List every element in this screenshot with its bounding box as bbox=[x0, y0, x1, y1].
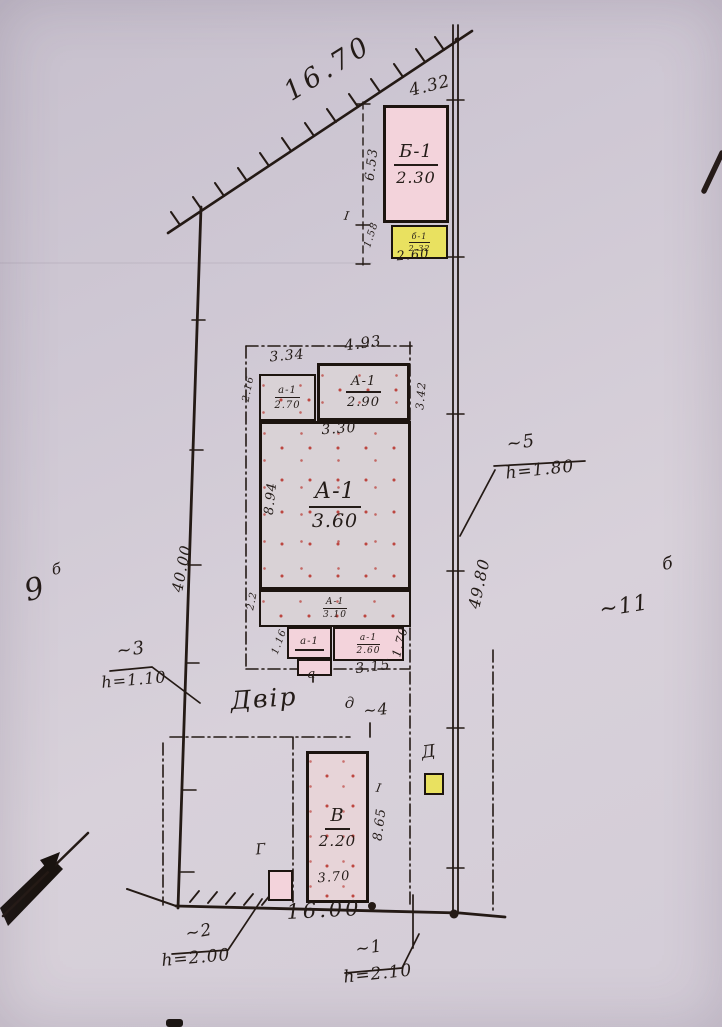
porch-left: а-1 bbox=[287, 627, 332, 659]
a1-rear-name: А-1 bbox=[323, 597, 348, 609]
a1-rear-height: 3.10 bbox=[323, 609, 347, 620]
porch-right-name: а-1 bbox=[357, 633, 380, 645]
porch-right-height: 2.60 bbox=[356, 645, 380, 656]
east-boundary-line bbox=[447, 25, 464, 913]
roman-tick-v: І bbox=[371, 781, 387, 795]
wing-right-name: А-1 bbox=[346, 374, 382, 393]
a1-rear-label: А-1 3.10 bbox=[261, 592, 409, 625]
porch-left-label: а-1 bbox=[289, 629, 330, 657]
neighbor-right-sup: б bbox=[657, 555, 679, 575]
building-a1-wing-left: а-1 2.70 bbox=[259, 374, 316, 421]
building-g-box bbox=[268, 870, 293, 901]
wing-left-height: 2.70 bbox=[274, 398, 300, 411]
building-v-name: В bbox=[325, 805, 349, 830]
building-d-box bbox=[424, 773, 444, 795]
building-b1-annex-name: б-1 bbox=[409, 232, 431, 243]
building-b1-name: Б-1 bbox=[394, 141, 438, 166]
roman-tick-top: І bbox=[339, 209, 355, 223]
dim-bottom-boundary: 16.00 bbox=[276, 898, 373, 924]
building-g-label: Г bbox=[249, 841, 272, 858]
wing-left-name: а-1 bbox=[275, 385, 300, 398]
building-v-height: 2.20 bbox=[319, 830, 356, 850]
a1-main-name: А-1 bbox=[309, 479, 360, 508]
site-plan-scan: Б-1 2.30 б-1 2.32 а-1 2.70 А-1 2.90 А-1 … bbox=[0, 0, 722, 1027]
building-a1-wing-right: А-1 2.90 bbox=[317, 363, 410, 421]
dim-wing-left-width: 3.34 bbox=[261, 347, 312, 365]
building-b1-label: Б-1 2.30 bbox=[386, 108, 446, 220]
building-b1-height: 2.30 bbox=[396, 166, 436, 187]
building-d-label: Д bbox=[415, 742, 443, 762]
building-a1-main: А-1 3.60 bbox=[259, 421, 411, 590]
porch-letter: а bbox=[302, 668, 322, 681]
neighbor-left-sup: б bbox=[47, 561, 67, 579]
wing-right-label: А-1 2.90 bbox=[320, 366, 407, 418]
building-a1-rear: А-1 3.10 bbox=[259, 590, 411, 627]
building-b1: Б-1 2.30 bbox=[383, 105, 449, 223]
a1-main-height: 3.60 bbox=[312, 508, 358, 532]
a1-main-label: А-1 3.60 bbox=[262, 424, 408, 587]
wing-right-height: 2.90 bbox=[347, 393, 380, 410]
porch-left-name: а-1 bbox=[295, 636, 324, 651]
wing-left-label: а-1 2.70 bbox=[261, 376, 314, 419]
